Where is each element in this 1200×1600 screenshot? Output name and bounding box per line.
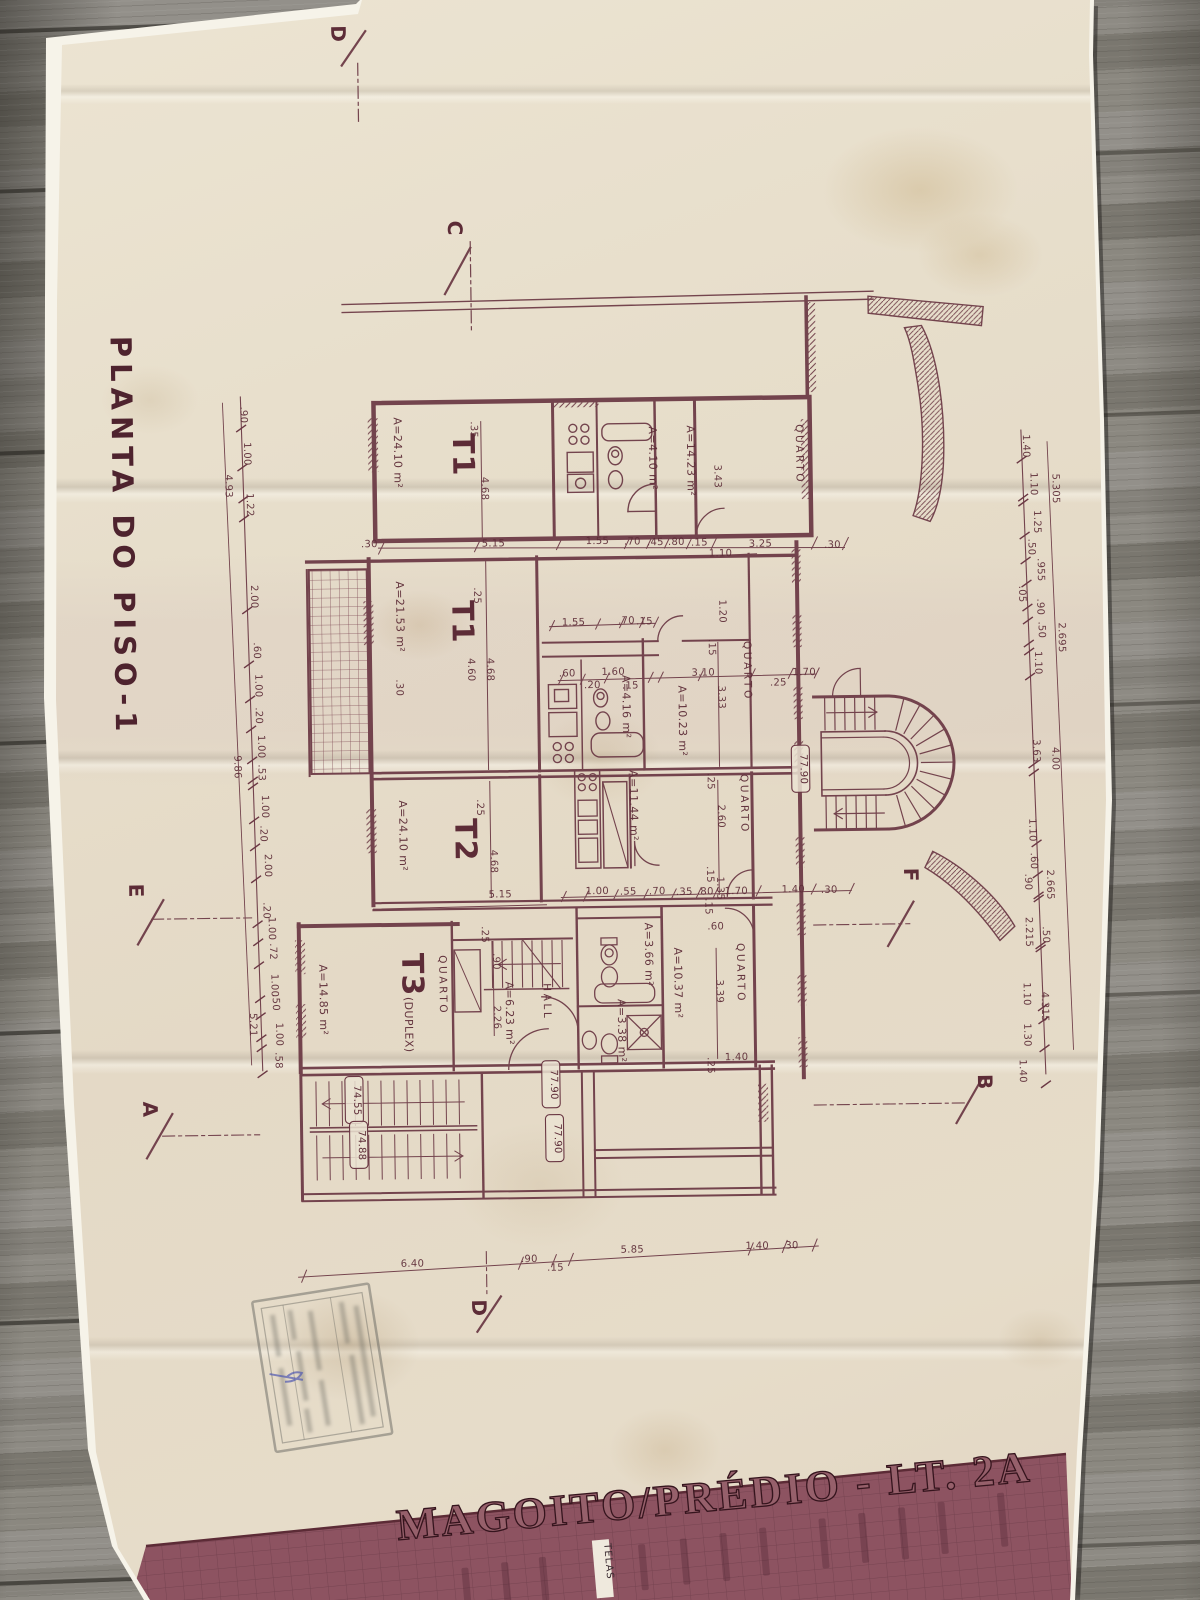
- elevation-value: 77.90: [552, 1123, 563, 1153]
- dimension-label: 1.20: [716, 599, 727, 623]
- dimension-label: 1.70: [724, 886, 748, 897]
- dimension-label: .90: [1022, 874, 1033, 891]
- dimension-label: .25: [705, 773, 716, 790]
- elevation-value: 77.90: [548, 1070, 559, 1100]
- room-area-label: A=11.44 m²: [627, 770, 641, 841]
- dimension-label: 9.86: [231, 755, 242, 779]
- dimension-label: .15: [704, 866, 715, 883]
- dimension-label: .72: [267, 943, 278, 960]
- dimension-label: .25: [474, 799, 485, 816]
- dimension-label: 1.00: [241, 442, 252, 466]
- dimension-label: 1.10: [1027, 472, 1038, 496]
- dimension-label: 1.55: [562, 617, 586, 628]
- section-marker: B: [973, 1074, 997, 1090]
- dimension-label: 4.00: [1049, 747, 1060, 771]
- section-marker: E: [124, 883, 148, 897]
- dimension-label: .15: [622, 680, 639, 691]
- dimension-label: 1.40: [781, 884, 805, 895]
- dimension-label: 6.40: [401, 1259, 425, 1270]
- dimension-label: .90: [237, 406, 248, 423]
- dimension-label: .15: [636, 616, 653, 627]
- dimension-label: 1.00: [266, 917, 277, 941]
- dimension-label: .60: [251, 642, 262, 659]
- room-area-label: A=14.85 m²: [316, 964, 330, 1035]
- dimension-label: 1.22: [244, 493, 255, 517]
- room-label: QUARTO: [741, 641, 754, 701]
- section-marker: C: [443, 220, 467, 235]
- section-marker: F: [899, 868, 923, 882]
- room-area-label: A=3.66 m²: [642, 923, 656, 987]
- dimension-label: .25: [705, 1057, 716, 1074]
- dimension-label: 1.00: [585, 886, 609, 897]
- dimension-label: .90: [490, 953, 501, 970]
- dimension-label: 2.60: [715, 805, 726, 829]
- dimension-label: 4.68: [478, 477, 489, 501]
- dimension-label: .60: [559, 668, 576, 679]
- apartment-label: T1: [444, 600, 480, 644]
- dimension-label: .20: [584, 680, 601, 691]
- dimension-label: .30: [821, 885, 838, 896]
- handwritten-mark: D: [1129, 1396, 1157, 1415]
- dimension-label: 2.00: [248, 585, 259, 609]
- elevation-value: 77.90: [797, 754, 808, 784]
- dimension-label: .30: [393, 679, 404, 696]
- title-block: MAGOITO/PRÉDIO - LT. 2A TELAS: [130, 1442, 1072, 1600]
- dimension-label: .05: [1016, 586, 1027, 603]
- dimension-label: 2.695: [1056, 622, 1067, 652]
- dimension-label: .50: [1025, 538, 1036, 555]
- dimension-label: 4.68: [488, 850, 499, 874]
- section-marker: D: [467, 1299, 491, 1316]
- dimension-label: 4.68: [484, 658, 495, 682]
- room-area-label: (DUPLEX): [402, 997, 416, 1053]
- dimension-label: 4.60: [465, 658, 476, 682]
- dimension-label: .30: [824, 540, 841, 551]
- dimension-label: 1.10: [709, 548, 733, 559]
- room-area-label: A=3.38 m²: [615, 999, 629, 1063]
- dimension-label: 1.00: [259, 795, 270, 819]
- room-label: QUARTO: [436, 955, 449, 1015]
- dimension-label: 1.40: [725, 1052, 749, 1063]
- dimension-label: .60: [1028, 852, 1039, 869]
- room-label: QUARTO: [734, 943, 747, 1003]
- room-area-label: A=10.23 m²: [675, 685, 689, 756]
- dimension-label: 4.315: [1039, 992, 1050, 1022]
- dimension-label: .25: [770, 677, 787, 688]
- dimension-label: 3.39: [714, 980, 725, 1004]
- apartment-label: T1: [445, 433, 481, 477]
- dimension-label: .35: [468, 421, 479, 438]
- dimension-label: 1.25: [1031, 510, 1042, 534]
- dimension-label: .15: [706, 639, 717, 656]
- room-area-label: A=24.10 m²: [391, 417, 405, 488]
- dimension-label: .25: [479, 926, 490, 943]
- room-area-label: A=10.37 m²: [671, 947, 685, 1018]
- dimension-label: 3.10: [691, 667, 715, 678]
- room-area-label: A=4.10 m²: [646, 426, 660, 490]
- dimension-label: 5.305: [1049, 473, 1060, 503]
- dimension-label: 1.00: [273, 1023, 284, 1047]
- dimension-label: .45: [647, 537, 664, 548]
- elevation-value: 74.55: [351, 1085, 362, 1115]
- photo-of-floor-plan: MAGOITO/PRÉDIO - LT. 2A TELAS PLANTA DO …: [0, 0, 1200, 1600]
- room-label: QUARTO: [738, 774, 751, 834]
- dimension-label: .55: [620, 886, 637, 897]
- dimension-label: .955: [1035, 558, 1046, 582]
- dimension-label: 1.30: [1021, 1023, 1032, 1047]
- dimension-label: .20: [257, 825, 268, 842]
- dimension-label: .90: [1034, 598, 1045, 615]
- dimension-label: .15: [691, 537, 708, 548]
- drawing-title: PLANTA DO PISO-1: [103, 336, 143, 738]
- dimension-label: .60: [707, 921, 724, 932]
- room-label: HALL: [541, 983, 554, 1020]
- dimension-label: 1.60: [601, 667, 625, 678]
- dimension-tick: [1041, 1081, 1051, 1088]
- section-marker: D: [326, 25, 350, 42]
- dimension-label: 1.40: [1017, 1059, 1028, 1083]
- dimension-label: .50: [1040, 926, 1051, 943]
- dimension-label: 3.43: [711, 465, 722, 489]
- dimension-label: 1.10: [1032, 651, 1043, 675]
- dimension-label: .50: [1036, 621, 1047, 638]
- ink-stamp: [252, 1283, 392, 1452]
- dimension-label: 1.55: [586, 536, 610, 547]
- elevation-value: 74.88: [356, 1130, 367, 1160]
- dimension-label: 1.00: [252, 674, 263, 698]
- dimension-label: .15: [547, 1263, 564, 1274]
- dimension-label: 5.15: [482, 538, 506, 549]
- dimension-label: .30: [782, 1240, 799, 1251]
- dimension-label: .58: [272, 1052, 283, 1069]
- dimension-tick: [258, 1071, 268, 1078]
- dimension-label: .80: [668, 537, 685, 548]
- dimension-label: 1.00: [255, 735, 266, 759]
- dimension-label: 5.85: [620, 1244, 644, 1255]
- dimension-label: 3.63: [1030, 739, 1041, 763]
- apartment-label: T3: [394, 953, 430, 997]
- section-marker: A: [138, 1101, 162, 1117]
- apartment-label: T2: [447, 818, 483, 862]
- dimension-label: .90: [521, 1254, 538, 1265]
- dimension-label: 2.26: [491, 1006, 502, 1030]
- dimension-label: .70: [649, 886, 666, 897]
- dimension-label: 5.21: [247, 1013, 258, 1037]
- dimension-label: 5.15: [489, 889, 513, 900]
- room-label: QUARTO: [793, 424, 806, 484]
- dimension-label: 1.40: [745, 1241, 769, 1252]
- dimension-label: 4.93: [222, 474, 233, 498]
- room-area-label: A=24.10 m²: [396, 800, 410, 871]
- room-area-label: A=6.23 m²: [503, 981, 517, 1045]
- dimension-label: .20: [253, 707, 264, 724]
- dimension-label: 3.33: [715, 685, 726, 709]
- dimension-label: 3.25: [749, 539, 773, 550]
- dimension-label: .70: [618, 615, 635, 626]
- room-area-label: A=14.23 m²: [684, 425, 698, 496]
- dimension-label: .25: [471, 587, 482, 604]
- dimension-label: .50: [270, 994, 281, 1011]
- dimension-label: .35: [676, 887, 693, 898]
- dimension-label: 1.10: [1021, 982, 1032, 1006]
- room-area-label: A=21.53 m²: [393, 581, 407, 652]
- dimension-label: 2.00: [262, 854, 273, 878]
- dimension-label: 1.70: [792, 667, 816, 678]
- dimension-label: 1.40: [1020, 434, 1031, 458]
- dimension-label: .53: [255, 764, 266, 781]
- dimension-label: .70: [624, 536, 641, 547]
- dimension-label: .15: [702, 898, 713, 915]
- dimension-label: 1.10: [1026, 818, 1037, 842]
- dimension-label: 2.215: [1023, 917, 1034, 947]
- dimension-label: 2.665: [1044, 870, 1055, 900]
- floor-plan-drawing: MAGOITO/PRÉDIO - LT. 2A TELAS PLANTA DO …: [0, 0, 1200, 1600]
- dimension-label: .80: [697, 886, 714, 897]
- dimension-label: .30: [361, 539, 378, 550]
